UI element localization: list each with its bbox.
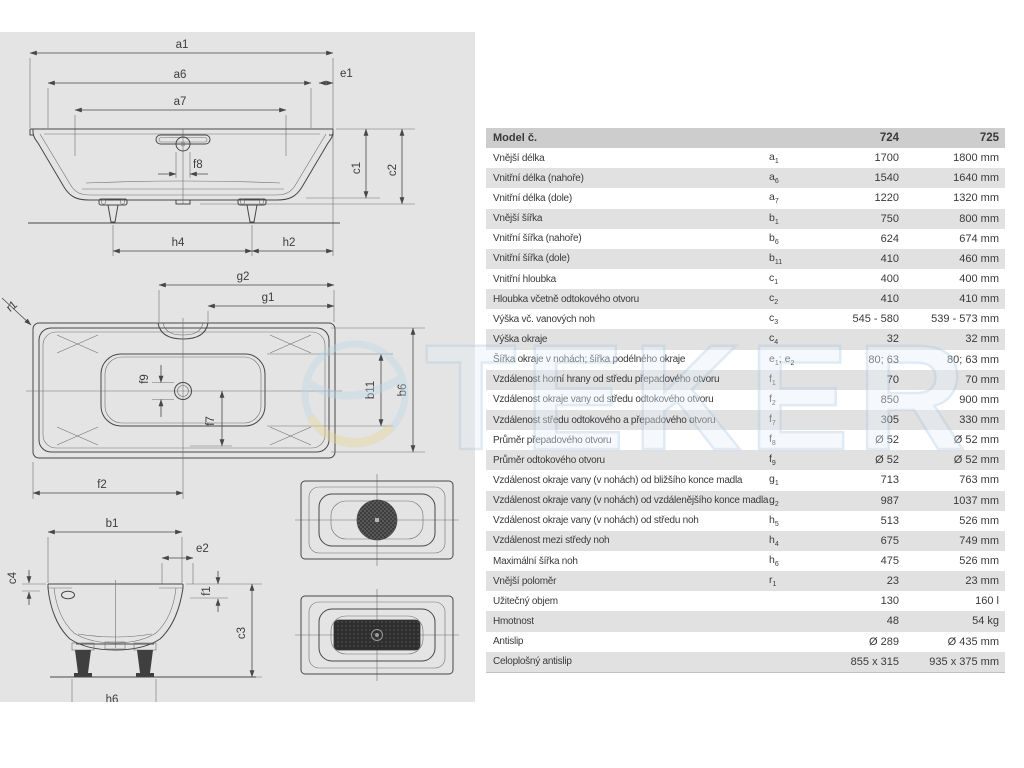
spec-value-724: 410 — [823, 253, 899, 265]
spec-label: Maximální šířka noh — [486, 556, 769, 567]
table-row: Celoplošný antislip855 x 315935 x 375 mm — [486, 652, 1005, 673]
table-row: Vzdálenost horní hrany od středu přepado… — [486, 370, 1005, 390]
spec-label: Vzdálenost okraje vany (v nohách) od stř… — [486, 515, 769, 526]
spec-value-724: 850 — [823, 394, 899, 406]
dim-label-a6: a6 — [174, 69, 187, 81]
spec-value-724: 750 — [823, 213, 899, 225]
spec-label: Vzdálenost mezi středy noh — [486, 535, 769, 546]
spec-symbol: a7 — [769, 191, 823, 205]
spec-label: Vnitřní délka (nahoře) — [486, 173, 769, 184]
spec-symbol: f9 — [769, 453, 823, 467]
table-header-725: 725 — [899, 132, 1005, 144]
plan-view: g2 g1 f9 f7 f2 — [2, 271, 425, 499]
drawing-panel: a1 a6 e1 a7 f8 — [0, 32, 475, 702]
spec-label: Vzdálenost okraje vany (v nohách) od vzd… — [486, 495, 769, 506]
spec-symbol: g1 — [769, 473, 823, 487]
dim-label-f9: f9 — [139, 374, 151, 384]
spec-value-725: 800 mm — [899, 213, 1005, 225]
table-row: Vzdálenost okraje vany (v nohách) od stř… — [486, 511, 1005, 531]
spec-symbol: h6 — [769, 554, 823, 568]
table-row: Maximální šířka nohh6475526 mm — [486, 551, 1005, 571]
dim-label-h2: h2 — [283, 237, 296, 249]
dim-label-f7: f7 — [205, 416, 217, 426]
dim-label-h4: h4 — [172, 237, 185, 249]
table-header-row: Model č. 724 725 — [486, 128, 1005, 148]
spec-value-725: Ø 435 mm — [899, 636, 1005, 648]
spec-value-724: 987 — [823, 495, 899, 507]
spec-label: Vnitřní šířka (nahoře) — [486, 233, 769, 244]
table-row: AntislipØ 289Ø 435 mm — [486, 632, 1005, 652]
dim-label-g1: g1 — [262, 292, 275, 304]
spec-label: Vzdálenost okraje vany (v nohách) od bli… — [486, 475, 769, 486]
spec-value-725: 330 mm — [899, 414, 1005, 426]
table-row: Vnější šířkab1750800 mm — [486, 209, 1005, 229]
spec-symbol: r1 — [769, 574, 823, 588]
spec-symbol: c1 — [769, 272, 823, 286]
spec-symbol: g2 — [769, 494, 823, 508]
dim-label-f2: f2 — [97, 479, 107, 491]
spec-value-725: 460 mm — [899, 253, 1005, 265]
spec-label: Výška okraje — [486, 334, 769, 345]
spec-symbol: f8 — [769, 433, 823, 447]
spec-value-725: 1640 mm — [899, 172, 1005, 184]
spec-value-724: 1700 — [823, 152, 899, 164]
spec-symbol: h5 — [769, 514, 823, 528]
spec-symbol: f2 — [769, 393, 823, 407]
spec-symbol: b6 — [769, 232, 823, 246]
table-row: Vzdálenost okraje vany od středu odtokov… — [486, 390, 1005, 410]
spec-label: Šířka okraje v nohách; šířka podélného o… — [486, 354, 769, 365]
spec-label: Vnitřní šířka (dole) — [486, 253, 769, 264]
spec-value-724: Ø 52 — [823, 434, 899, 446]
spec-table: Model č. 724 725 Vnější délkaa117001800 … — [486, 128, 1005, 673]
spec-symbol: b11 — [769, 252, 823, 266]
spec-value-724: 475 — [823, 555, 899, 567]
spec-label: Hloubka včetně odtokového otvoru — [486, 294, 769, 305]
spec-label: Vnější poloměr — [486, 576, 769, 587]
spec-label: Antislip — [486, 636, 769, 647]
dim-label-a7: a7 — [174, 96, 187, 108]
spec-value-725: 54 kg — [899, 615, 1005, 627]
spec-label: Vzdálenost horní hrany od středu přepado… — [486, 374, 769, 385]
spec-value-724: 1540 — [823, 172, 899, 184]
spec-symbol: f1 — [769, 373, 823, 387]
dim-label-b1: b1 — [106, 518, 119, 530]
spec-value-724: Ø 52 — [823, 454, 899, 466]
dim-label-e2: e2 — [196, 543, 209, 555]
spec-value-724: 513 — [823, 515, 899, 527]
table-row: Průměr přepadového otvoruf8Ø 52Ø 52 mm — [486, 430, 1005, 450]
spec-label: Celoplošný antislip — [486, 656, 769, 667]
spec-value-725: 70 mm — [899, 374, 1005, 386]
table-row: Vnitřní délka (nahoře)a615401640 mm — [486, 168, 1005, 188]
spec-value-725: 1800 mm — [899, 152, 1005, 164]
spec-value-725: 900 mm — [899, 394, 1005, 406]
spec-value-725: Ø 52 mm — [899, 434, 1005, 446]
table-row: Vzdálenost středu odtokového a přepadové… — [486, 410, 1005, 430]
spec-value-725: 1037 mm — [899, 495, 1005, 507]
spec-value-724: 713 — [823, 474, 899, 486]
elevation-view: a1 a6 e1 a7 f8 — [28, 39, 415, 256]
spec-symbol: b1 — [769, 212, 823, 226]
dim-label-c2: c2 — [387, 164, 399, 176]
antislip-full-view — [295, 589, 459, 681]
table-row: Průměr odtokového otvoruf9Ø 52Ø 52 mm — [486, 450, 1005, 470]
spec-value-724: 545 - 580 — [823, 313, 899, 325]
spec-value-725: 935 x 375 mm — [899, 656, 1005, 668]
table-row: Vnější délkaa117001800 mm — [486, 148, 1005, 168]
table-row: Vzdálenost okraje vany (v nohách) od bli… — [486, 470, 1005, 490]
spec-value-724: 410 — [823, 293, 899, 305]
spec-value-725: 23 mm — [899, 575, 1005, 587]
spec-value-724: 130 — [823, 595, 899, 607]
section-view: b1 e2 c4 f1 c3 — [7, 518, 262, 702]
spec-value-725: 32 mm — [899, 333, 1005, 345]
table-row: Vnitřní šířka (dole)b11410460 mm — [486, 249, 1005, 269]
table-header-model: Model č. — [486, 132, 769, 144]
spec-value-724: 48 — [823, 615, 899, 627]
spec-value-725: 80; 63 mm — [899, 354, 1005, 366]
dim-label-h6: h6 — [106, 694, 119, 702]
table-row: Vzdálenost mezi středy nohh4675749 mm — [486, 531, 1005, 551]
spec-label: Užitečný objem — [486, 596, 769, 607]
spec-value-724: 855 x 315 — [823, 656, 899, 668]
spec-value-725: 539 - 573 mm — [899, 313, 1005, 325]
spec-value-724: Ø 289 — [823, 636, 899, 648]
spec-value-724: 305 — [823, 414, 899, 426]
spec-value-724: 1220 — [823, 192, 899, 204]
dim-label-c1: c1 — [351, 162, 363, 174]
dim-label-c4: c4 — [7, 571, 19, 584]
dim-label-g2: g2 — [237, 271, 250, 283]
table-header-724: 724 — [823, 132, 899, 144]
dim-label-b11: b11 — [365, 381, 377, 399]
spec-label: Vnitřní hloubka — [486, 274, 769, 285]
spec-value-724: 400 — [823, 273, 899, 285]
spec-label: Vnější šířka — [486, 213, 769, 224]
table-row: Šířka okraje v nohách; šířka podélného o… — [486, 350, 1005, 370]
table-row: Vnitřní hloubkac1400400 mm — [486, 269, 1005, 289]
spec-symbol: f7 — [769, 413, 823, 427]
spec-label: Průměr přepadového otvoru — [486, 435, 769, 446]
spec-symbol: c2 — [769, 292, 823, 306]
spec-value-725: 674 mm — [899, 233, 1005, 245]
dim-label-f8: f8 — [193, 159, 203, 171]
table-row: Vnitřní délka (dole)a712201320 mm — [486, 188, 1005, 208]
spec-value-725: 749 mm — [899, 535, 1005, 547]
table-row: Vzdálenost okraje vany (v nohách) od vzd… — [486, 491, 1005, 511]
dim-label-c3: c3 — [236, 627, 248, 639]
spec-label: Hmotnost — [486, 616, 769, 627]
spec-value-725: 1320 mm — [899, 192, 1005, 204]
spec-value-725: 526 mm — [899, 555, 1005, 567]
spec-symbol: a6 — [769, 171, 823, 185]
spec-value-725: 400 mm — [899, 273, 1005, 285]
dim-label-f1: f1 — [201, 586, 213, 596]
spec-value-724: 675 — [823, 535, 899, 547]
spec-value-724: 23 — [823, 575, 899, 587]
spec-value-725: 160 l — [899, 595, 1005, 607]
table-row: Hmotnost4854 kg — [486, 611, 1005, 631]
table-row: Užitečný objem130160 l — [486, 591, 1005, 611]
dim-label-a1: a1 — [176, 39, 189, 51]
spec-value-724: 32 — [823, 333, 899, 345]
spec-symbol: a1 — [769, 151, 823, 165]
spec-symbol: h4 — [769, 534, 823, 548]
table-body: Vnější délkaa117001800 mmVnitřní délka (… — [486, 148, 1005, 673]
technical-drawing: a1 a6 e1 a7 f8 — [0, 32, 475, 702]
spec-value-725: 763 mm — [899, 474, 1005, 486]
table-row: Vnější poloměrr12323 mm — [486, 571, 1005, 591]
spec-symbol: c3 — [769, 312, 823, 326]
spec-value-724: 80; 63 — [823, 354, 899, 366]
table-row: Hloubka včetně odtokového otvoruc2410410… — [486, 289, 1005, 309]
spec-label: Vnitřní délka (dole) — [486, 193, 769, 204]
spec-value-725: Ø 52 mm — [899, 454, 1005, 466]
spec-value-725: 410 mm — [899, 293, 1005, 305]
spec-value-724: 624 — [823, 233, 899, 245]
dim-label-b6: b6 — [397, 384, 409, 397]
spec-label: Výška vč. vanových noh — [486, 314, 769, 325]
spec-label: Vzdálenost středu odtokového a přepadové… — [486, 415, 769, 426]
spec-symbol: c4 — [769, 332, 823, 346]
spec-symbol: e1; e2 — [769, 353, 823, 367]
spec-value-725: 526 mm — [899, 515, 1005, 527]
table-row: Výška vč. vanových nohc3545 - 580539 - 5… — [486, 309, 1005, 329]
spec-label: Vzdálenost okraje vany od středu odtokov… — [486, 394, 769, 405]
spec-label: Průměr odtokového otvoru — [486, 455, 769, 466]
table-row: Výška okrajec43232 mm — [486, 329, 1005, 349]
table-row: Vnitřní šířka (nahoře)b6624674 mm — [486, 229, 1005, 249]
antislip-round-view — [295, 474, 459, 566]
spec-label: Vnější délka — [486, 153, 769, 164]
spec-value-724: 70 — [823, 374, 899, 386]
dim-label-e1: e1 — [340, 68, 353, 80]
